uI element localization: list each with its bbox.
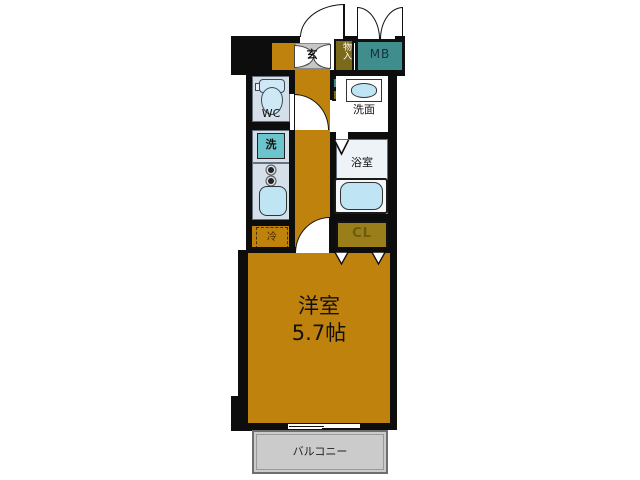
balcony-window-sash-left [289, 426, 324, 428]
stove-burner-icon [268, 167, 274, 173]
closet-door-marker-right-icon [371, 252, 386, 266]
meter-box-label: MB [355, 48, 405, 61]
fridge-label: 冷 [256, 232, 288, 243]
genkan-label: 玄 [302, 49, 322, 61]
wall-corridor-left-b [289, 130, 295, 253]
bathtub-inner-icon [340, 182, 383, 210]
washroom-sink-icon [351, 83, 377, 98]
wall-washroom-bathroom [348, 132, 397, 139]
closet-label: CL [336, 227, 388, 241]
washroom-label: 洗面 [342, 104, 386, 116]
floor-plan: 玄 物入 MB WC 洗 冷 洗面 浴室 [0, 0, 640, 480]
wall-bathroom-closet [336, 214, 397, 221]
wc-label: WC [252, 108, 290, 120]
main-room-name: 洋室 [248, 295, 390, 318]
closet-door-marker-left-icon [334, 252, 349, 266]
entrance-door-leaf-icon [343, 4, 345, 38]
wall-top-a [268, 36, 300, 43]
wall-room-bottom-right [360, 423, 397, 430]
balcony-window-sash-right [322, 428, 360, 430]
wall-corridor-left-a [289, 76, 295, 94]
bathroom-label: 浴室 [340, 157, 384, 169]
wall-room-bottom-left [238, 423, 288, 430]
kitchen-sink-icon [259, 186, 287, 216]
main-room-label: 洋室 5.7帖 [248, 295, 390, 345]
entrance-door-arc-icon [300, 4, 345, 37]
toilet-button-icon [255, 83, 260, 91]
balcony-label: バルコニー [252, 446, 388, 458]
meter-box-door-arc-left-icon [357, 7, 380, 39]
stove-burner2-icon [268, 178, 274, 184]
bathroom-door-marker-icon [333, 139, 350, 157]
meter-box-door-arc-right-icon [380, 7, 403, 39]
main-room-size: 5.7帖 [248, 322, 390, 345]
washer-label: 洗 [257, 139, 285, 151]
storage-label: 物入 [338, 42, 350, 72]
wall-under-wc [252, 122, 290, 130]
